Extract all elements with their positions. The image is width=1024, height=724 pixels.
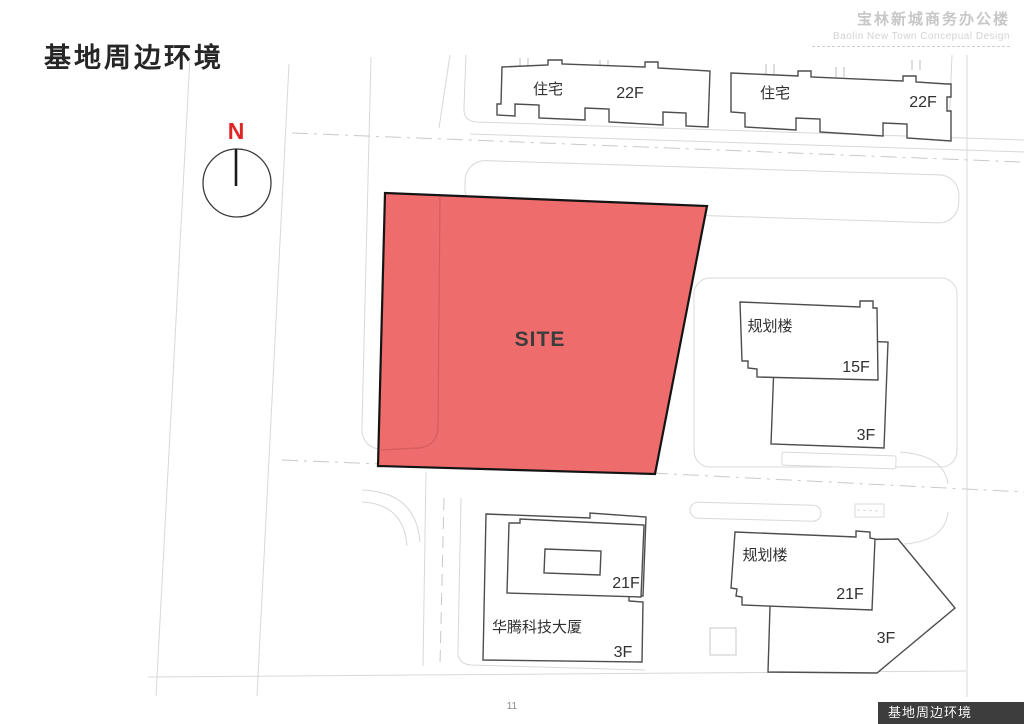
road-left-1 bbox=[156, 57, 190, 696]
page-number: 11 bbox=[0, 701, 1024, 712]
floor-label: 21F bbox=[836, 586, 864, 603]
floor-label: 22F bbox=[909, 94, 937, 111]
centerline-mid-left bbox=[282, 460, 380, 464]
building-label: 规划楼 bbox=[742, 547, 787, 564]
site-plan-map: 住宅 22F 住宅 22F 规划楼 15F 3F bbox=[0, 0, 1024, 724]
corner-arc-1 bbox=[362, 490, 420, 542]
footer-section-tab: 基地周边环境 bbox=[878, 702, 1024, 724]
building-label: 住宅 bbox=[533, 81, 563, 98]
document-page: 住宅 22F 住宅 22F 规划楼 15F 3F bbox=[0, 0, 1024, 724]
building-planned-east: 规划楼 15F 3F bbox=[740, 301, 888, 448]
entry-ticks bbox=[766, 60, 920, 77]
corner-arc-4 bbox=[904, 512, 948, 544]
building-label: 华腾科技大厦 bbox=[492, 619, 582, 636]
building-planned-south: 规划楼 21F 3F bbox=[710, 531, 955, 673]
floor-label: 21F bbox=[612, 575, 640, 592]
site-area: SITE bbox=[378, 193, 707, 474]
centerline-mid-right bbox=[652, 473, 1024, 492]
podium-floor-label: 3F bbox=[857, 427, 876, 444]
small-structure bbox=[710, 628, 736, 655]
podium-floor-label: 3F bbox=[614, 644, 633, 661]
building-label: 住宅 bbox=[760, 85, 790, 102]
north-label: N bbox=[228, 118, 245, 144]
core-outline bbox=[544, 549, 601, 575]
road-left-2 bbox=[257, 64, 289, 696]
centerline-vertical-road bbox=[440, 498, 444, 664]
road-vertical-edge-left bbox=[423, 472, 426, 666]
site-label: SITE bbox=[515, 328, 566, 351]
project-title-cn: 宝林新城商务办公楼 bbox=[812, 8, 1010, 29]
north-compass: N bbox=[203, 118, 271, 217]
building-residential-2: 住宅 22F bbox=[731, 60, 951, 141]
sidewalk-strip-north bbox=[782, 452, 896, 469]
road-diagonal-top bbox=[439, 55, 450, 128]
building-outline bbox=[497, 60, 710, 127]
crosswalk-dashes bbox=[857, 510, 882, 511]
podium-floor-label: 3F bbox=[877, 630, 896, 647]
floor-label: 15F bbox=[842, 359, 870, 376]
building-residential-1: 住宅 22F bbox=[497, 58, 710, 127]
floor-label: 22F bbox=[616, 85, 644, 102]
header-dashed-rule bbox=[812, 46, 1010, 47]
building-huateng: 21F 华腾科技大厦 3F bbox=[483, 513, 646, 662]
page-title: 基地周边环境 bbox=[44, 36, 224, 75]
project-title-en: Baolin New Town Concepual Design bbox=[812, 31, 1010, 42]
corner-arc-3 bbox=[900, 452, 948, 484]
corner-arc-2 bbox=[362, 502, 407, 546]
document-header: 宝林新城商务办公楼 Baolin New Town Concepual Desi… bbox=[812, 8, 1010, 47]
building-label: 规划楼 bbox=[747, 318, 792, 335]
sidewalk-strip-south bbox=[690, 502, 821, 521]
